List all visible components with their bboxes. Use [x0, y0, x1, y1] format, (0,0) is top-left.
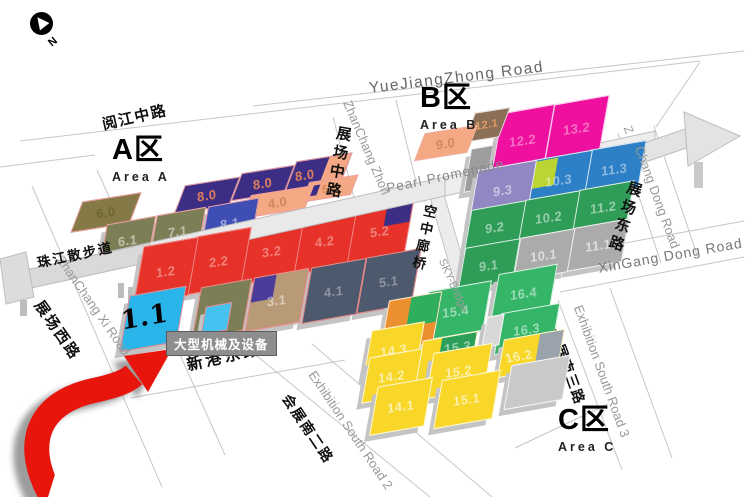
hall-label: 1.2	[156, 262, 176, 280]
promenade-end-west	[0, 252, 34, 304]
area-a-title: A区	[112, 136, 170, 165]
area-c-subtitle: Area C	[558, 440, 616, 454]
hall-label: 6.0	[96, 203, 116, 221]
hall-4.1[interactable]: 4.1	[301, 258, 366, 324]
road-label-zhanchang-xi-road-cn: 展场西路	[30, 296, 86, 364]
hall-label: 1.1	[119, 298, 169, 336]
compass: N	[30, 12, 53, 35]
hall-label: 3.1	[267, 291, 287, 309]
hall-label: 4.2	[315, 232, 335, 250]
hall-label: 4.1	[324, 282, 344, 300]
hall-label: 3.2	[262, 242, 282, 260]
hall-label: 8.0	[197, 186, 217, 204]
hall-label: 11.2	[590, 198, 617, 217]
arrow-shadow	[26, 355, 161, 497]
hall-label: 4.0	[268, 193, 288, 211]
hall-label: 7.1	[168, 222, 188, 240]
hall-3.1[interactable]: 3.1	[245, 268, 310, 332]
hall-label: 10.1	[530, 246, 557, 265]
area-b-subtitle: Area B	[420, 118, 478, 132]
compass-north-label: N	[46, 35, 60, 49]
area-b-label: B区 Area B	[420, 84, 478, 132]
compass-disc	[30, 12, 53, 35]
hall-14.1[interactable]: 14.1	[369, 377, 433, 436]
area-a-subtitle: Area A	[112, 170, 170, 184]
area-c-label: C区 Area C	[558, 406, 616, 454]
hall-label: 11.3	[601, 160, 628, 179]
hall-label: 5.2	[370, 222, 390, 240]
hall-label: 9.0	[436, 134, 456, 152]
north-arrow-icon	[33, 14, 50, 31]
hall-label: 15.1	[453, 390, 480, 409]
hall-label: 9.2	[485, 219, 505, 237]
road-label-z-fragment: Z	[621, 124, 637, 136]
area-a-label: A区 Area A	[112, 136, 170, 184]
exhibition-map: N A区 Area A B区 Area B C区 Area C 大型机械及设备 …	[0, 0, 750, 497]
hall-label: 5.1	[379, 272, 399, 290]
hall-label: 9.3	[493, 182, 513, 200]
hall-label: 14.1	[387, 397, 414, 416]
hall-label: 10.3	[545, 171, 572, 190]
hall-label: 13.2	[563, 119, 590, 138]
hall-label: 9.1	[479, 256, 499, 274]
hall-label: 10.2	[535, 208, 562, 227]
hall-label: 16.4	[510, 284, 537, 303]
hall-label: 6.1	[118, 231, 138, 249]
hall-callout-tooltip: 大型机械及设备	[166, 331, 277, 356]
hall-label: 2.2	[209, 252, 229, 270]
road-label-yuejiang-middle-road-cn: 阅江中路	[100, 99, 169, 134]
hall-label: 12.1	[475, 117, 499, 133]
hall-label: 12.2	[509, 131, 536, 150]
hall-label: 8.0	[253, 174, 273, 192]
arrow-body	[37, 349, 172, 497]
